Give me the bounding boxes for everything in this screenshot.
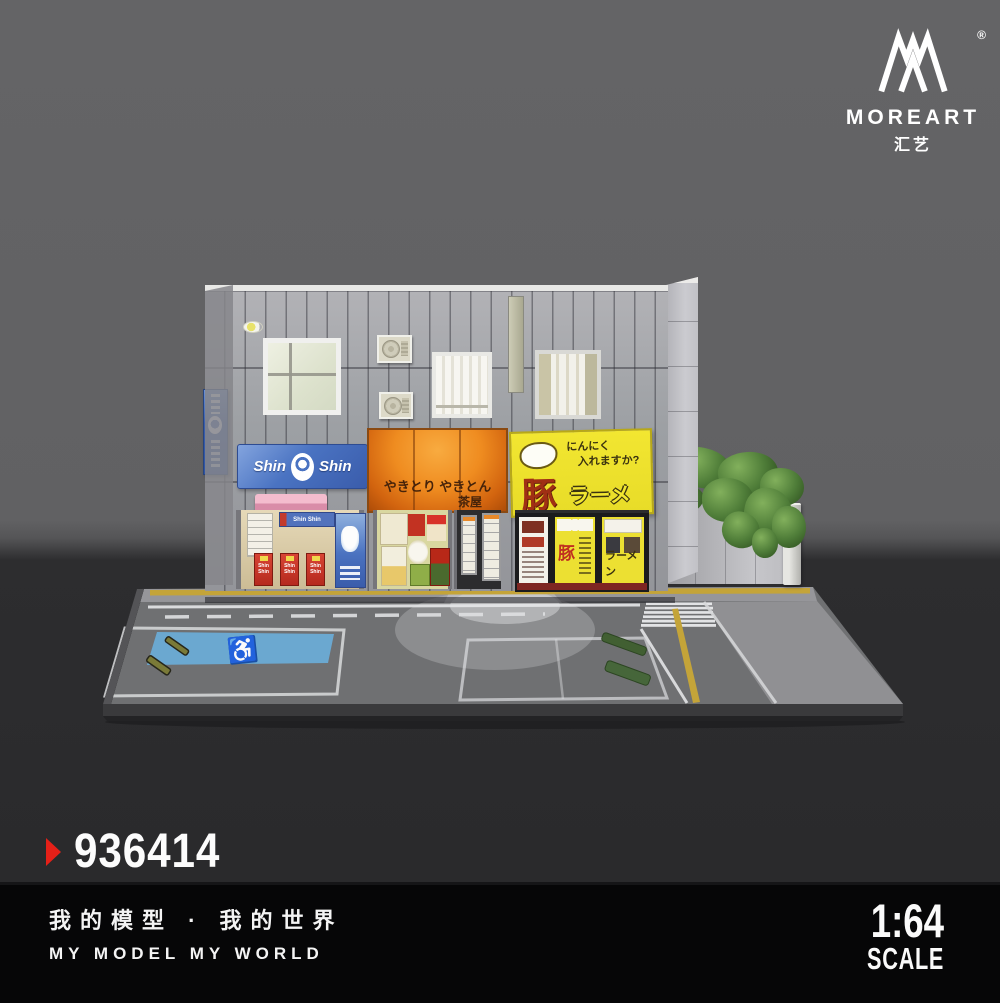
building-side-wall — [666, 277, 698, 584]
shop-base-panel — [517, 583, 647, 590]
ground-shadow — [205, 597, 675, 603]
menu-board — [482, 513, 501, 581]
window — [263, 338, 341, 415]
storefront-posters — [373, 510, 452, 589]
curtained-window — [432, 352, 492, 418]
air-conditioner — [377, 335, 412, 363]
photo-backdrop: ® MOREART 汇艺 ♿ — [0, 0, 1000, 882]
photo — [522, 521, 544, 533]
window-ramen-text: ラーメン — [605, 547, 644, 579]
ramen-sign: にんにく 入れますか? 豚 ラーメン — [509, 428, 654, 518]
dish-photos — [557, 519, 593, 531]
air-conditioner — [379, 392, 413, 419]
red-banner: Shin Shin — [280, 553, 299, 586]
base-bottom-edge — [103, 716, 903, 721]
vent-duct — [508, 296, 524, 393]
handicap-symbol: ♿ — [226, 634, 260, 666]
poster — [410, 564, 430, 586]
product-image: { "brand": { "registered": "®", "name": … — [0, 0, 1000, 1000]
ac-fan — [382, 340, 400, 358]
poster — [427, 515, 446, 541]
red-banner: Shin Shin — [306, 553, 325, 586]
menu-board-bay — [454, 510, 501, 589]
scale-block: 1:64 SCALE — [834, 893, 944, 977]
slogan-block: 我的模型 · 我的世界 MY MODEL MY WORLD — [49, 903, 344, 964]
yakitori-sign-text: やきとり やきとん — [369, 476, 506, 495]
window-sticker — [243, 321, 263, 333]
yakitori-sign-subtext: 茶屋 — [458, 493, 482, 510]
product-code: 936414 — [74, 824, 220, 879]
shin-emblem — [291, 453, 314, 481]
shop-window-yellow: ラーメン — [602, 517, 644, 589]
ac-vent — [402, 398, 409, 413]
poster — [335, 513, 366, 588]
building-facade: Shin Shin やきとり やきとん 茶屋 にんにく 入れますか? 豚 ラーメ… — [205, 285, 668, 591]
foliage — [752, 528, 778, 558]
text-lines — [579, 537, 591, 577]
slogan-english: MY MODEL MY WORLD — [49, 944, 344, 964]
ac-vent — [401, 341, 408, 356]
shop-window-poster — [519, 517, 548, 587]
dish-photo — [408, 540, 428, 564]
shin-text-left: Shin — [254, 458, 287, 475]
storefront-ramen: 豚 ラーメン — [515, 510, 649, 592]
building-left-corner — [205, 285, 233, 585]
red-triangle-icon — [46, 838, 61, 866]
ramen-sign-line2: 入れますか? — [577, 451, 639, 469]
window-buta-text: 豚 — [558, 539, 575, 564]
poster — [380, 513, 408, 545]
slogan-chinese: 我的模型 · 我的世界 — [49, 903, 344, 935]
product-code-row: 936414 — [46, 824, 240, 879]
photo — [522, 537, 544, 547]
window-rail — [436, 405, 488, 408]
storefront-shinshin: Shin Shin Shin Shin Shin Shin Shin Shin — [236, 510, 364, 589]
pink-awning — [255, 494, 327, 511]
scale-value: 1:64 — [858, 893, 944, 948]
text-lines — [522, 551, 544, 581]
garlic-icon — [519, 442, 558, 470]
model-building: Shin Shin やきとり やきとん 茶屋 にんにく 入れますか? 豚 ラーメ… — [205, 277, 697, 585]
poster — [604, 519, 642, 533]
poster — [430, 548, 450, 586]
shop-window-yellow: 豚 — [555, 517, 595, 589]
yakitori-sign: やきとり やきとん 茶屋 — [367, 428, 508, 513]
diorama-photo: ♿ — [0, 0, 1000, 882]
poster — [408, 514, 425, 536]
footer-bar: 我的模型 · 我的世界 MY MODEL MY WORLD 1:64 SCALE — [0, 882, 1000, 1003]
mini-shinshin-banner: Shin Shin — [279, 512, 335, 527]
scale-label: SCALE — [867, 941, 944, 977]
base-front-face — [103, 704, 903, 716]
poster — [381, 546, 407, 586]
ac-fan — [384, 397, 402, 415]
shinshin-sign: Shin Shin — [237, 444, 368, 489]
shin-text-right: Shin — [319, 458, 352, 475]
curtained-window — [535, 350, 601, 419]
poster — [247, 513, 273, 557]
menu-board — [461, 515, 477, 575]
red-banner: Shin Shin — [254, 553, 273, 586]
